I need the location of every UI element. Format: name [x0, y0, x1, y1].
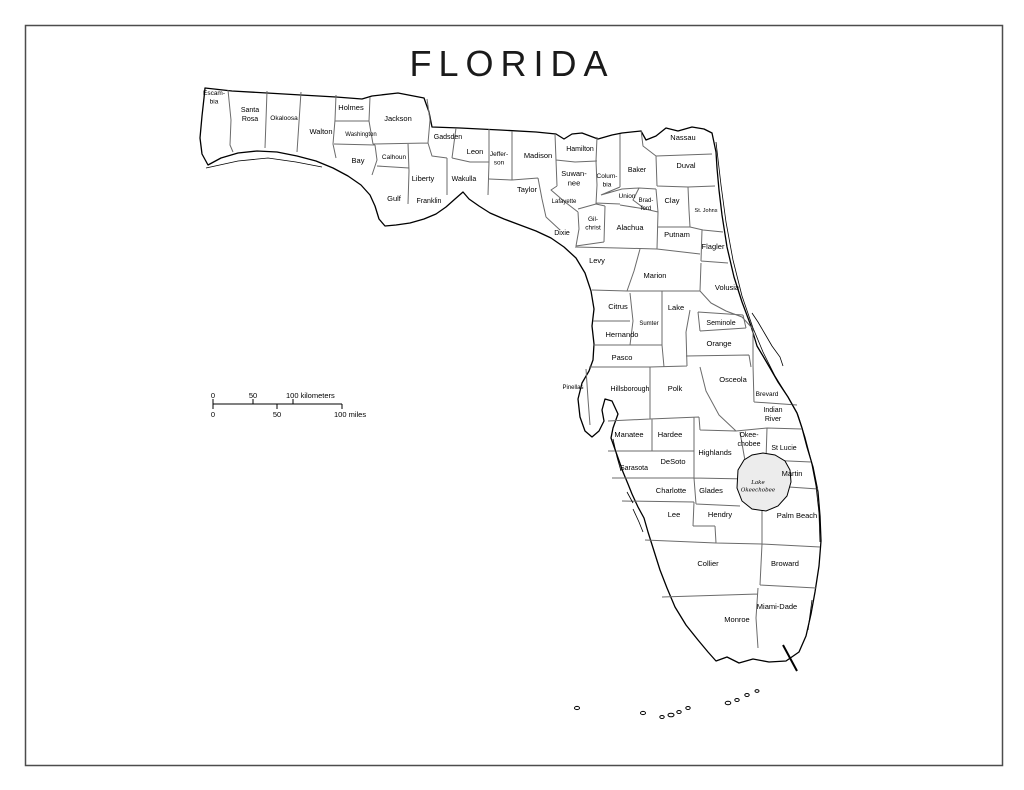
- barrier-islands: [206, 142, 820, 630]
- county-label: Hendry: [708, 510, 732, 519]
- county-label: Wakulla: [452, 176, 477, 183]
- county-label: Hillsborough: [611, 386, 650, 393]
- county-label: Okaloosa: [270, 115, 298, 122]
- county-label: Martin: [782, 469, 803, 478]
- county-label: Lee: [668, 510, 681, 519]
- county-label: Osceola: [719, 375, 747, 384]
- county-label: Hamilton: [566, 146, 594, 153]
- scale-bar-label: 50: [249, 391, 257, 400]
- county-label: Hernando: [606, 330, 639, 339]
- florida-keys: [575, 645, 798, 719]
- county-label: Citrus: [608, 302, 628, 311]
- county-label: Collier: [697, 559, 719, 568]
- county-label: Colum-bia: [597, 173, 618, 189]
- county-labels: Escam-biaSantaRosaOkaloosaWaltonHolmesWa…: [203, 90, 817, 624]
- county-label: Liberty: [412, 174, 435, 183]
- county-label: Miami-Dade: [757, 602, 797, 611]
- county-label: Gulf: [387, 194, 402, 203]
- county-label: Polk: [668, 384, 683, 393]
- county-label: SantaRosa: [241, 107, 259, 123]
- county-label: Taylor: [517, 185, 538, 194]
- county-label: Nassau: [670, 133, 695, 142]
- county-label: Manatee: [614, 430, 643, 439]
- county-label: Palm Beach: [777, 511, 817, 520]
- county-label: Dixie: [554, 230, 570, 237]
- scale-bar: [213, 399, 342, 409]
- county-label: IndianRiver: [763, 407, 782, 423]
- county-label: St Lucie: [771, 445, 796, 452]
- county-label: Glades: [699, 486, 723, 495]
- florida-map: FLORIDA Escam-biaSantaRosaOkaloosaWalton…: [0, 0, 1024, 790]
- county-label: Hardee: [658, 430, 683, 439]
- county-label: Monroe: [724, 615, 749, 624]
- county-label: Brevard: [756, 391, 779, 398]
- county-label: Lafayette: [552, 199, 577, 205]
- county-label: Washington: [345, 132, 376, 138]
- county-label: Gadsden: [434, 134, 463, 141]
- county-label: Highlands: [698, 448, 732, 457]
- county-label: Calhoun: [382, 154, 407, 161]
- county-label: Putnam: [664, 230, 690, 239]
- county-label: Clay: [664, 196, 679, 205]
- county-label: Levy: [589, 256, 605, 265]
- county-label: Union: [619, 193, 636, 200]
- county-label: Charlotte: [656, 486, 686, 495]
- county-label: Pasco: [612, 353, 633, 362]
- county-borders: [228, 90, 820, 648]
- county-label: Lake: [668, 303, 684, 312]
- county-label: Marion: [644, 271, 667, 280]
- county-label: Seminole: [706, 320, 735, 327]
- county-label: Sumter: [639, 321, 658, 327]
- county-label: Brad-ford: [639, 198, 654, 212]
- florida-county-map-page: FLORIDA Escam-biaSantaRosaOkaloosaWalton…: [0, 0, 1024, 790]
- county-label: Volusia: [715, 283, 740, 292]
- county-label: Franklin: [417, 198, 442, 205]
- county-label: DeSoto: [660, 457, 685, 466]
- county-label: Suwan-nee: [561, 169, 587, 188]
- county-label: Bay: [352, 156, 365, 165]
- county-label: Holmes: [338, 103, 364, 112]
- page-title: FLORIDA: [409, 43, 614, 84]
- county-label: Alachua: [616, 223, 644, 232]
- county-label: Flagler: [702, 242, 725, 251]
- county-label: Orange: [706, 339, 731, 348]
- county-label: Jeffer-son: [490, 151, 508, 167]
- county-label: Walton: [309, 127, 332, 136]
- county-label: Baker: [628, 167, 647, 174]
- county-label: St. Johns: [695, 208, 718, 214]
- scale-bar-label: 100 kilometers: [286, 391, 335, 400]
- map-frame: [26, 26, 1003, 766]
- county-label: Pinellas: [562, 385, 583, 391]
- county-label: Broward: [771, 559, 799, 568]
- county-label: Jackson: [384, 114, 412, 123]
- scale-bar-label: 0: [211, 391, 215, 400]
- county-label: Duval: [676, 161, 696, 170]
- scale-bar-label: 0: [211, 410, 215, 419]
- county-label: Escam-bia: [203, 90, 225, 106]
- scale-bar-labels: 050100 kilometers050100 miles: [211, 391, 366, 419]
- county-label: Gil-christ: [585, 216, 601, 232]
- county-label: Sarasota: [620, 465, 648, 472]
- scale-bar-label: 50: [273, 410, 281, 419]
- county-label: Leon: [467, 147, 484, 156]
- county-label: Madison: [524, 151, 552, 160]
- scale-bar-label: 100 miles: [334, 410, 366, 419]
